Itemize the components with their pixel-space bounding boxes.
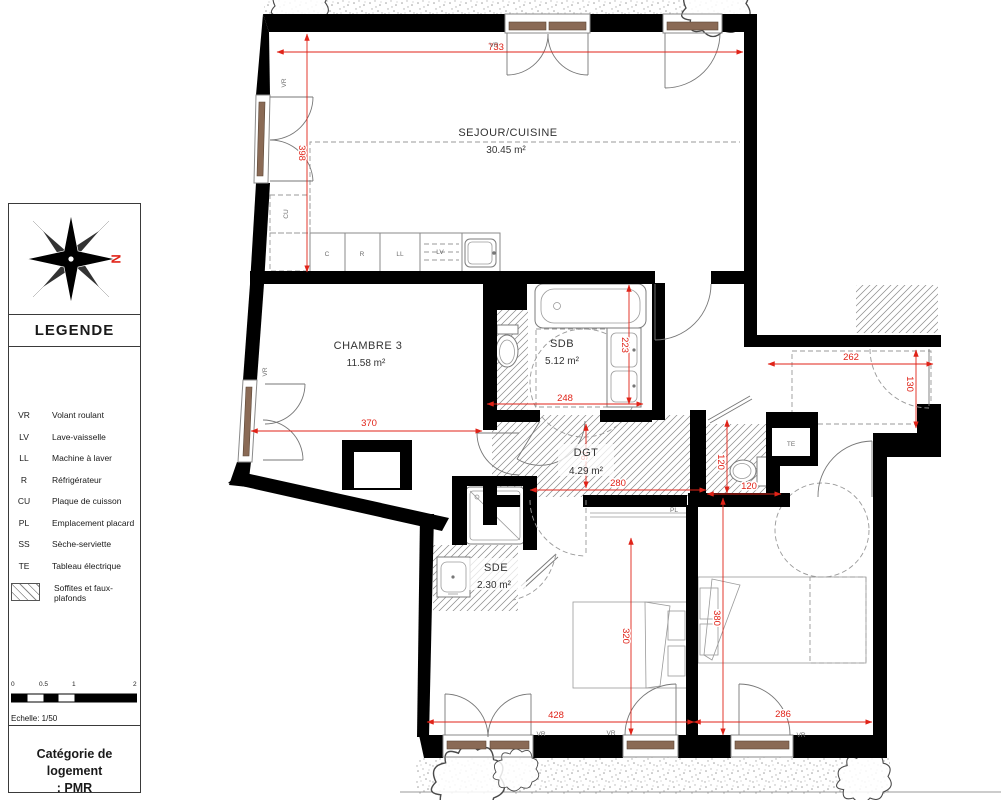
- category-line1: Catégorie de logement: [9, 746, 140, 780]
- dim-label: 248: [557, 393, 573, 404]
- dim-label: 428: [548, 710, 564, 721]
- scale-tick: 1: [72, 681, 76, 688]
- wc-door: [710, 399, 752, 423]
- legend-row: CU Plaque de cuisson: [9, 497, 140, 506]
- annotation-labels: VR VR VR VR VR VR TE PL CU C R LL LV: [262, 42, 806, 739]
- dim-label: 286: [775, 709, 791, 720]
- legend-abbr: LL: [9, 454, 39, 463]
- legend-row: LL Machine à laver: [9, 454, 140, 463]
- room-area: 11.58 m²: [347, 358, 386, 369]
- legend-label: Tableau électrique: [52, 562, 121, 571]
- scale-tick: 0: [11, 681, 15, 688]
- soffit-dashed-lines: [270, 142, 931, 663]
- pl-label: PL: [670, 507, 678, 514]
- legend-abbr: LV: [9, 433, 39, 442]
- dim-label: 280: [610, 478, 626, 489]
- legend-label: Machine à laver: [52, 454, 112, 463]
- compass-rose: N: [9, 204, 140, 314]
- vr-label: VR: [281, 78, 288, 87]
- dim-label: 120: [715, 454, 726, 470]
- legend-label: Emplacement placard: [52, 519, 134, 528]
- legend-label: Lave-vaisselle: [52, 433, 106, 442]
- room-name: SEJOUR/CUISINE: [458, 127, 557, 139]
- legend-label: Volant roulant: [52, 411, 104, 420]
- pillow: [668, 646, 685, 676]
- dim-label: 398: [296, 145, 307, 161]
- kitchen-counter: [310, 233, 500, 272]
- category-box: Catégorie de logement : PMR: [8, 725, 141, 793]
- scale-tick: 2: [133, 681, 137, 688]
- room-area: 5.12 m²: [545, 356, 580, 367]
- legend-abbr: CU: [9, 497, 39, 506]
- dim-label: 120: [741, 481, 757, 492]
- legend-title: LEGENDE: [35, 322, 115, 339]
- vr-label: VR: [262, 367, 269, 376]
- dim-label: 380: [711, 610, 722, 626]
- legend-rows: VR Volant roulant LV Lave-vaisselle LL M…: [9, 411, 140, 603]
- category-line2: : PMR: [9, 780, 140, 797]
- te-label: TE: [787, 441, 796, 448]
- room-area: 4.29 m²: [569, 466, 604, 477]
- room-name: SDE: [484, 562, 508, 574]
- entrance-door: [870, 349, 929, 408]
- legend-list-box: VR Volant roulant LV Lave-vaisselle LL M…: [8, 346, 141, 726]
- bedroom2-door: [530, 500, 586, 556]
- trees: [271, 0, 891, 800]
- legend-abbr: R: [9, 476, 39, 485]
- kitchen-lv-label: LV: [436, 249, 444, 256]
- legend-label: Soffites et faux- plafonds: [54, 583, 113, 603]
- legend-row: SS Sèche-serviette: [9, 540, 140, 549]
- legend-row: R Réfrigérateur: [9, 476, 140, 485]
- legend-label: Plaque de cuisson: [52, 497, 121, 506]
- kitchen-r-label: R: [360, 251, 365, 258]
- vr-label: VR: [489, 42, 498, 49]
- room-area: 30.45 m²: [486, 145, 526, 156]
- legend-abbr: SS: [9, 540, 39, 549]
- compass-box: N: [8, 203, 141, 315]
- dim-label: 262: [843, 352, 859, 363]
- scale-label: Echelle: 1/50: [11, 714, 139, 723]
- legend-label: Réfrigérateur: [52, 476, 102, 485]
- legend-abbr: VR: [9, 411, 39, 420]
- toilet-tank: [757, 457, 767, 486]
- scale-tick: 0.5: [39, 681, 48, 688]
- vr-label: VR: [796, 732, 805, 739]
- dim-label: 370: [361, 418, 377, 429]
- legend-row: TE Tableau électrique: [9, 562, 140, 571]
- scale-bar: 0 0.5 1 2 Echelle: 1/50: [11, 681, 139, 723]
- legend-abbr: TE: [9, 562, 39, 571]
- legend-row: LV Lave-vaisselle: [9, 433, 140, 442]
- legend-title-box: LEGENDE: [8, 314, 141, 347]
- kitchen-ll-label: LL: [396, 251, 404, 258]
- dim-label: 130: [904, 376, 915, 392]
- bedroom2-furniture: [573, 513, 694, 688]
- dimensions: 733 398 370 248 223 262 130 120 120 280 …: [251, 34, 933, 735]
- dim-label: 320: [620, 628, 631, 644]
- legend-abbr: PL: [9, 519, 39, 528]
- cu-label: CU: [283, 209, 290, 219]
- room-name: CHAMBRE 3: [334, 340, 403, 352]
- legend-swatch-row: Soffites et faux- plafonds: [9, 583, 140, 603]
- vr-label: VR: [606, 730, 615, 737]
- hatch-landing: [856, 285, 938, 333]
- scale-ticks: 0 0.5 1 2: [11, 681, 139, 690]
- legend-label: Sèche-serviette: [52, 540, 111, 549]
- bed: [573, 602, 687, 688]
- toilet-tank: [497, 325, 518, 334]
- terrace-stipple-top: [264, 0, 748, 14]
- legend-row: VR Volant roulant: [9, 411, 140, 420]
- room-area: 2.30 m²: [477, 580, 512, 591]
- north-label: N: [109, 254, 124, 263]
- pillow: [668, 611, 685, 640]
- walls: [228, 14, 941, 758]
- room-name: SDB: [550, 338, 574, 350]
- floor-plan: 733 398 370 248 223 262 130 120 120 280 …: [0, 0, 1001, 800]
- kitchen-c-label: C: [325, 251, 330, 258]
- dim-label: 223: [619, 337, 630, 353]
- shaft: [354, 452, 400, 488]
- legend-row: PL Emplacement placard: [9, 519, 140, 528]
- room-name: DGT: [574, 447, 599, 459]
- soffit-swatch-icon: [11, 583, 40, 601]
- vr-label: VR: [536, 731, 545, 738]
- scale-bar-graphic: [11, 693, 138, 703]
